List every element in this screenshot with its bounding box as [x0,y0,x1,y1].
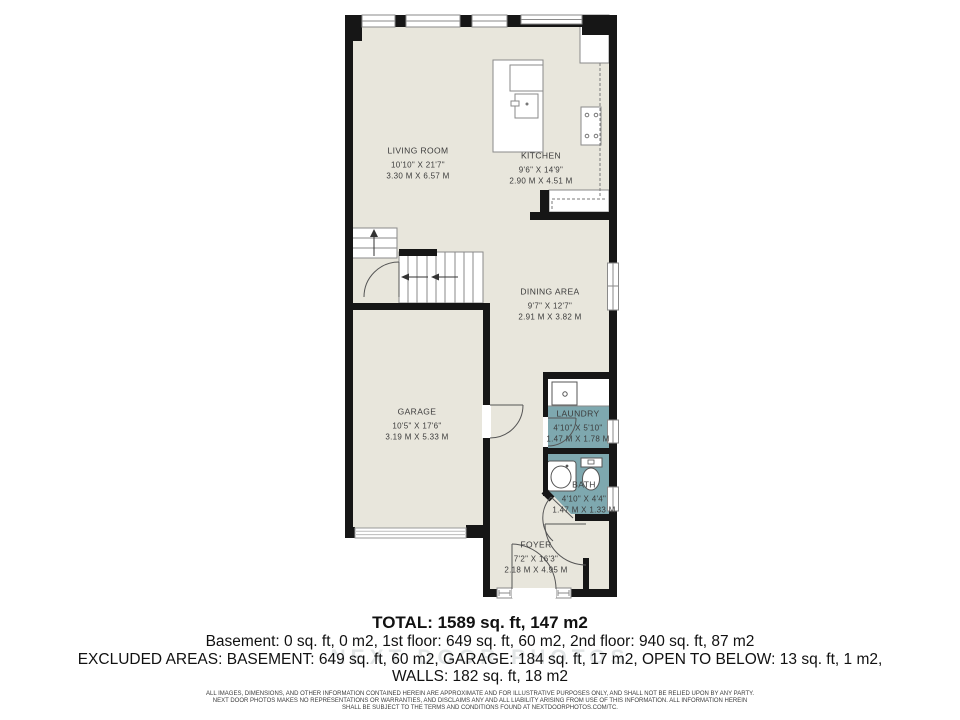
garage-entry-opening [482,405,491,438]
walls-area-line: WALLS: 182 sq. ft, 18 m2 [0,668,960,686]
sidelight-left [497,588,512,598]
stove-icon [581,107,601,145]
excluded-areas-line: EXCLUDED AREAS: BASEMENT: 649 sq. ft, 60… [0,651,960,669]
room-name: LAUNDRY [546,408,609,420]
room-dims-imperial: 9'7" X 12'7" [518,301,581,312]
sidelight-right [556,588,571,598]
window-top-4 [521,15,582,24]
washer-icon [552,382,577,405]
room-dims-metric: 2.18 M X 4.95 M [504,565,567,576]
room-name: DINING AREA [518,286,581,298]
room-dims-metric: 3.19 M X 5.33 M [385,432,448,443]
label-living-room: LIVING ROOM 10'10" X 21'7" 3.30 M X 6.57… [386,145,449,182]
kitchen-island [493,60,543,152]
room-name: GARAGE [385,406,448,418]
window-top-3 [472,15,507,27]
disclaimer-line-2: NEXT DOOR PHOTOS MAKES NO REPRESENTATION… [0,698,960,705]
room-dims-imperial: 10'10" X 21'7" [386,160,449,171]
disclaimer: ALL IMAGES, DIMENSIONS, AND OTHER INFORM… [0,691,960,712]
label-garage: GARAGE 10'5" X 17'6" 3.19 M X 5.33 M [385,406,448,443]
window-dining [608,263,619,310]
label-laundry: LAUNDRY 4'10" X 5'10" 1.47 M X 1.78 M [546,408,609,445]
label-dining-area: DINING AREA 9'7" X 12'7" 2.91 M X 3.82 M [518,286,581,323]
room-dims-imperial: 7'2" X 16'3" [504,554,567,565]
room-dims-metric: 3.30 M X 6.57 M [386,171,449,182]
front-door-opening [512,588,556,598]
disclaimer-line-3: SHALL BE SUBJECT TO THE TERMS AND CONDIT… [0,705,960,712]
room-name: BATH [552,479,615,491]
window-top-2 [406,15,460,27]
room-dims-metric: 1.47 M X 1.78 M [546,434,609,445]
garage-door [355,528,466,538]
room-dims-imperial: 4'10" X 5'10" [546,423,609,434]
disclaimer-line-1: ALL IMAGES, DIMENSIONS, AND OTHER INFORM… [0,691,960,698]
area-summary: TOTAL: 1589 sq. ft, 147 m2 Basement: 0 s… [0,612,960,712]
label-kitchen: KITCHEN 9'6" X 14'9" 2.90 M X 4.51 M [509,150,572,187]
room-dims-imperial: 10'5" X 17'6" [385,421,448,432]
room-dims-metric: 2.90 M X 4.51 M [509,176,572,187]
label-foyer: FOYER 7'2" X 16'3" 2.18 M X 4.95 M [504,539,567,576]
room-name: KITCHEN [509,150,572,162]
floors-area-line: Basement: 0 sq. ft, 0 m2, 1st floor: 649… [0,633,960,651]
room-name: FOYER [504,539,567,551]
room-dims-metric: 2.91 M X 3.82 M [518,312,581,323]
room-dims-imperial: 4'10" X 4'4" [552,494,615,505]
room-dims-imperial: 9'6" X 14'9" [509,165,572,176]
total-area-line: TOTAL: 1589 sq. ft, 147 m2 [0,612,960,633]
label-bath: BATH 4'10" X 4'4" 1.47 M X 1.33 M [552,479,615,516]
room-name: LIVING ROOM [386,145,449,157]
room-dims-metric: 1.47 M X 1.33 M [552,505,615,516]
window-top-1 [362,15,395,27]
